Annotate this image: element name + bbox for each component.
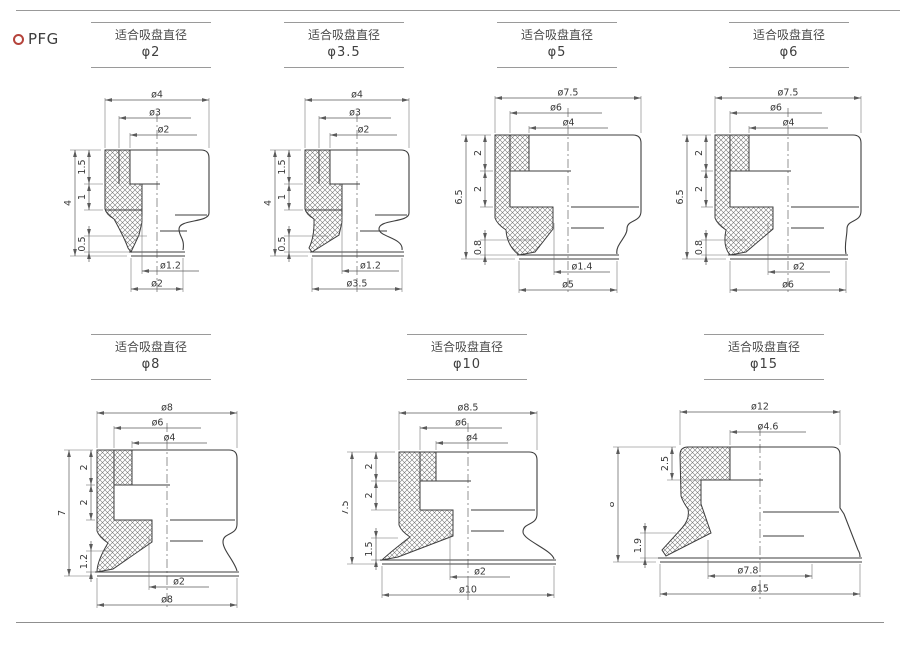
dim-arrow-icon bbox=[202, 98, 209, 102]
dim-arrow-icon bbox=[519, 288, 526, 292]
dim-arrow-icon bbox=[402, 98, 409, 102]
header-title: 适合吸盘直径 bbox=[284, 27, 404, 44]
dim-arrow-icon bbox=[483, 171, 487, 178]
dim-label: 6.5 bbox=[676, 189, 686, 204]
dim-arrow-icon bbox=[708, 574, 715, 578]
figure-drawing-phi10: ø8.5ø6ø47.5221.5ø2ø10 bbox=[342, 400, 570, 630]
header-title: 适合吸盘直径 bbox=[91, 27, 211, 44]
dim-arrow-icon bbox=[87, 177, 91, 184]
dim-label: 0.5 bbox=[77, 236, 88, 251]
dim-arrow-icon bbox=[287, 252, 291, 259]
brand-label: PFG bbox=[28, 30, 59, 48]
dim-arrow-icon bbox=[87, 252, 91, 259]
dim-label: 8 bbox=[610, 501, 617, 507]
header-value: φ2 bbox=[91, 44, 211, 62]
dim-label: 0.8 bbox=[694, 240, 705, 255]
header-title: 适合吸盘直径 bbox=[407, 339, 527, 356]
dim-arrow-icon bbox=[230, 603, 237, 607]
dim-arrow-icon bbox=[287, 203, 291, 210]
dim-arrow-icon bbox=[530, 411, 537, 415]
dim-label: ø2 bbox=[173, 577, 185, 588]
suction-cup-section bbox=[305, 150, 342, 252]
dim-arrow-icon bbox=[839, 288, 846, 292]
suction-cup-section bbox=[105, 150, 142, 252]
header-value: φ6 bbox=[729, 44, 849, 62]
dim-arrow-icon bbox=[89, 513, 93, 520]
dim-arrow-icon bbox=[97, 411, 104, 415]
dim-arrow-icon bbox=[495, 96, 502, 100]
dim-label: ø4 bbox=[164, 433, 176, 444]
figure-drawing-phi8: ø8ø6ø47221.2ø2ø8 bbox=[55, 400, 275, 630]
dim-arrow-icon bbox=[131, 287, 138, 291]
dim-arrow-icon bbox=[704, 255, 708, 262]
figure-drawing-phi5: ø7.5ø6ø46.5220.8ø1.4ø5 bbox=[455, 85, 660, 315]
dim-label: 1.9 bbox=[633, 538, 644, 553]
dim-label: ø7.5 bbox=[778, 88, 799, 99]
dim-arrow-icon bbox=[715, 96, 722, 100]
figure-drawing-phi3-5: ø4ø3ø241.510.5ø1.2ø3.5 bbox=[255, 85, 455, 315]
dim-arrow-icon bbox=[730, 111, 737, 115]
header-title: 适合吸盘直径 bbox=[729, 27, 849, 44]
dim-arrow-icon bbox=[768, 270, 775, 274]
dim-arrow-icon bbox=[395, 287, 402, 291]
dim-label: ø1.2 bbox=[360, 261, 381, 272]
dim-arrow-icon bbox=[450, 575, 457, 579]
dim-arrow-icon bbox=[670, 447, 674, 454]
dim-label: ø3.5 bbox=[347, 279, 368, 290]
header-value: φ8 bbox=[91, 356, 211, 374]
dim-arrow-icon bbox=[643, 558, 647, 565]
dim-label: 4 bbox=[263, 200, 274, 206]
dim-label: 2.5 bbox=[660, 456, 671, 471]
dim-label: 1.2 bbox=[79, 554, 90, 569]
header-value: φ5 bbox=[497, 44, 617, 62]
dim-arrow-icon bbox=[374, 474, 378, 481]
dim-label: ø2 bbox=[151, 279, 163, 290]
brand-bullet-icon bbox=[13, 34, 24, 45]
header-title: 适合吸盘直径 bbox=[497, 27, 617, 44]
dim-arrow-icon bbox=[685, 135, 689, 142]
dim-label: ø6 bbox=[770, 103, 782, 114]
dim-label: 4 bbox=[63, 200, 74, 206]
dim-arrow-icon bbox=[342, 269, 349, 273]
dim-arrow-icon bbox=[73, 150, 77, 157]
dim-arrow-icon bbox=[464, 252, 468, 259]
catalog-page: PFG 适合吸盘直径φ2ø4ø3ø241.510.5ø1.2ø2适合吸盘直径φ3… bbox=[0, 0, 900, 656]
dim-arrow-icon bbox=[554, 270, 561, 274]
dim-arrow-icon bbox=[319, 116, 326, 120]
dim-label: ø12 bbox=[751, 402, 769, 413]
dim-arrow-icon bbox=[67, 450, 71, 457]
figure-header-phi5: 适合吸盘直径φ5 bbox=[497, 22, 617, 68]
dim-label: ø6 bbox=[550, 103, 562, 114]
dim-arrow-icon bbox=[87, 203, 91, 210]
dim-label: 2 bbox=[473, 150, 484, 156]
dim-label: 2 bbox=[694, 150, 705, 156]
header-title: 适合吸盘直径 bbox=[704, 339, 824, 356]
dim-arrow-icon bbox=[330, 133, 337, 137]
dim-arrow-icon bbox=[704, 233, 708, 240]
dim-label: ø10 bbox=[459, 585, 477, 596]
dim-arrow-icon bbox=[704, 135, 708, 142]
dim-label: ø4 bbox=[151, 90, 163, 101]
dim-label: ø4 bbox=[783, 118, 795, 129]
dim-arrow-icon bbox=[382, 593, 389, 597]
dim-arrow-icon bbox=[704, 171, 708, 178]
dim-arrow-icon bbox=[97, 603, 104, 607]
figure-drawing-phi15: ø12ø4.682.51.9ø7.8ø15 bbox=[610, 400, 882, 630]
dim-label: 1 bbox=[277, 194, 288, 200]
suction-cup-profile bbox=[132, 450, 237, 571]
suction-cup-profile bbox=[436, 452, 554, 559]
dim-arrow-icon bbox=[749, 126, 756, 130]
dim-arrow-icon bbox=[510, 111, 517, 115]
dim-arrow-icon bbox=[230, 411, 237, 415]
dim-arrow-icon bbox=[483, 135, 487, 142]
dim-label: ø6 bbox=[782, 280, 794, 291]
dim-label: ø2 bbox=[158, 125, 170, 136]
dim-arrow-icon bbox=[436, 441, 443, 445]
dim-arrow-icon bbox=[273, 150, 277, 157]
dim-label: 2 bbox=[694, 186, 705, 192]
dim-arrow-icon bbox=[374, 481, 378, 488]
dim-label: 1 bbox=[77, 194, 88, 200]
dim-label: 2 bbox=[364, 492, 375, 498]
dim-label: 1.5 bbox=[77, 159, 88, 174]
dim-label: 7.5 bbox=[342, 500, 351, 515]
dim-label: ø6 bbox=[455, 418, 467, 429]
figure-drawing-phi6: ø7.5ø6ø46.5220.8ø2ø6 bbox=[676, 85, 886, 315]
dim-label: ø4 bbox=[351, 90, 363, 101]
dim-arrow-icon bbox=[176, 287, 183, 291]
suction-cup-section bbox=[715, 135, 773, 255]
dim-arrow-icon bbox=[399, 411, 406, 415]
dim-arrow-icon bbox=[149, 585, 156, 589]
dim-label: 1.5 bbox=[277, 159, 288, 174]
dim-label: 0.5 bbox=[277, 236, 288, 251]
dim-label: ø2 bbox=[793, 262, 805, 273]
bottom-rule bbox=[16, 622, 884, 623]
dim-label: ø5 bbox=[562, 280, 574, 291]
dim-label: ø8.5 bbox=[458, 403, 479, 414]
dim-label: 2 bbox=[79, 464, 90, 470]
dim-arrow-icon bbox=[853, 592, 860, 596]
dim-arrow-icon bbox=[67, 569, 71, 576]
dim-arrow-icon bbox=[483, 164, 487, 171]
dim-arrow-icon bbox=[132, 441, 139, 445]
dim-arrow-icon bbox=[680, 410, 687, 414]
top-rule bbox=[16, 10, 900, 11]
dim-arrow-icon bbox=[730, 430, 737, 434]
dim-arrow-icon bbox=[287, 150, 291, 157]
dim-arrow-icon bbox=[483, 200, 487, 207]
dim-arrow-icon bbox=[105, 98, 112, 102]
figure-header-phi6: 适合吸盘直径φ6 bbox=[729, 22, 849, 68]
dim-label: 2 bbox=[473, 186, 484, 192]
dim-label: ø7.5 bbox=[558, 88, 579, 99]
figure-drawing-phi2: ø4ø3ø241.510.5ø1.2ø2 bbox=[55, 85, 255, 315]
suction-cup-profile bbox=[730, 447, 860, 557]
dim-label: ø2 bbox=[358, 125, 370, 136]
dim-label: ø1.4 bbox=[572, 262, 593, 273]
dim-arrow-icon bbox=[142, 269, 149, 273]
dim-label: ø4.6 bbox=[758, 422, 779, 433]
dim-arrow-icon bbox=[287, 177, 291, 184]
dim-arrow-icon bbox=[305, 98, 312, 102]
dim-arrow-icon bbox=[287, 229, 291, 236]
dim-arrow-icon bbox=[704, 164, 708, 171]
dim-label: ø6 bbox=[152, 418, 164, 429]
dim-arrow-icon bbox=[89, 450, 93, 457]
dim-arrow-icon bbox=[610, 288, 617, 292]
dim-arrow-icon bbox=[374, 560, 378, 567]
dim-arrow-icon bbox=[634, 96, 641, 100]
dim-label: 0.8 bbox=[473, 240, 484, 255]
dim-arrow-icon bbox=[464, 135, 468, 142]
dim-arrow-icon bbox=[374, 531, 378, 538]
dim-arrow-icon bbox=[420, 426, 427, 430]
dim-label: 2 bbox=[79, 499, 90, 505]
header-value: φ15 bbox=[704, 356, 824, 374]
figure-header-phi15: 适合吸盘直径φ15 bbox=[704, 334, 824, 380]
figure-header-phi10: 适合吸盘直径φ10 bbox=[407, 334, 527, 380]
dim-arrow-icon bbox=[89, 478, 93, 485]
dim-label: 1.5 bbox=[364, 541, 375, 556]
dim-arrow-icon bbox=[89, 485, 93, 492]
dim-arrow-icon bbox=[616, 555, 620, 562]
dim-arrow-icon bbox=[483, 255, 487, 262]
dim-label: 2 bbox=[364, 463, 375, 469]
dim-arrow-icon bbox=[805, 574, 812, 578]
dim-label: ø8 bbox=[161, 403, 173, 414]
dim-arrow-icon bbox=[483, 233, 487, 240]
dim-arrow-icon bbox=[89, 544, 93, 551]
dim-label: ø15 bbox=[751, 584, 769, 595]
dim-arrow-icon bbox=[660, 592, 667, 596]
figure-header-phi8: 适合吸盘直径φ8 bbox=[91, 334, 211, 380]
dim-arrow-icon bbox=[350, 557, 354, 564]
dim-label: ø1.2 bbox=[160, 261, 181, 272]
header-value: φ3.5 bbox=[284, 44, 404, 62]
dim-label: ø2 bbox=[474, 567, 486, 578]
dim-arrow-icon bbox=[704, 200, 708, 207]
dim-label: 7 bbox=[57, 510, 68, 516]
dim-arrow-icon bbox=[87, 150, 91, 157]
dim-arrow-icon bbox=[854, 96, 861, 100]
dim-arrow-icon bbox=[670, 473, 674, 480]
brand: PFG bbox=[13, 30, 59, 48]
suction-cup-section bbox=[495, 135, 553, 255]
dim-arrow-icon bbox=[87, 184, 91, 191]
dim-arrow-icon bbox=[529, 126, 536, 130]
dim-arrow-icon bbox=[87, 229, 91, 236]
dim-arrow-icon bbox=[312, 287, 319, 291]
dim-arrow-icon bbox=[374, 452, 378, 459]
suction-cup-profile bbox=[749, 135, 861, 254]
dim-label: 6.5 bbox=[455, 189, 465, 204]
dim-label: ø4 bbox=[563, 118, 575, 129]
dim-arrow-icon bbox=[685, 252, 689, 259]
dim-label: ø4 bbox=[466, 433, 478, 444]
figure-header-phi3-5: 适合吸盘直径φ3.5 bbox=[284, 22, 404, 68]
dim-arrow-icon bbox=[616, 447, 620, 454]
dim-arrow-icon bbox=[547, 593, 554, 597]
dim-arrow-icon bbox=[114, 426, 121, 430]
dim-label: ø7.8 bbox=[738, 566, 759, 577]
suction-cup-section bbox=[382, 452, 453, 560]
dim-arrow-icon bbox=[643, 526, 647, 533]
dim-arrow-icon bbox=[89, 572, 93, 579]
header-title: 适合吸盘直径 bbox=[91, 339, 211, 356]
figure-header-phi2: 适合吸盘直径φ2 bbox=[91, 22, 211, 68]
dim-label: ø8 bbox=[161, 595, 173, 606]
suction-cup-section bbox=[97, 450, 152, 572]
dim-label: ø3 bbox=[149, 108, 161, 119]
dim-label: ø3 bbox=[349, 108, 361, 119]
dim-arrow-icon bbox=[350, 452, 354, 459]
dim-arrow-icon bbox=[130, 133, 137, 137]
header-value: φ10 bbox=[407, 356, 527, 374]
dim-arrow-icon bbox=[833, 410, 840, 414]
dim-arrow-icon bbox=[374, 503, 378, 510]
dim-arrow-icon bbox=[287, 184, 291, 191]
dim-arrow-icon bbox=[730, 288, 737, 292]
dim-arrow-icon bbox=[119, 116, 126, 120]
